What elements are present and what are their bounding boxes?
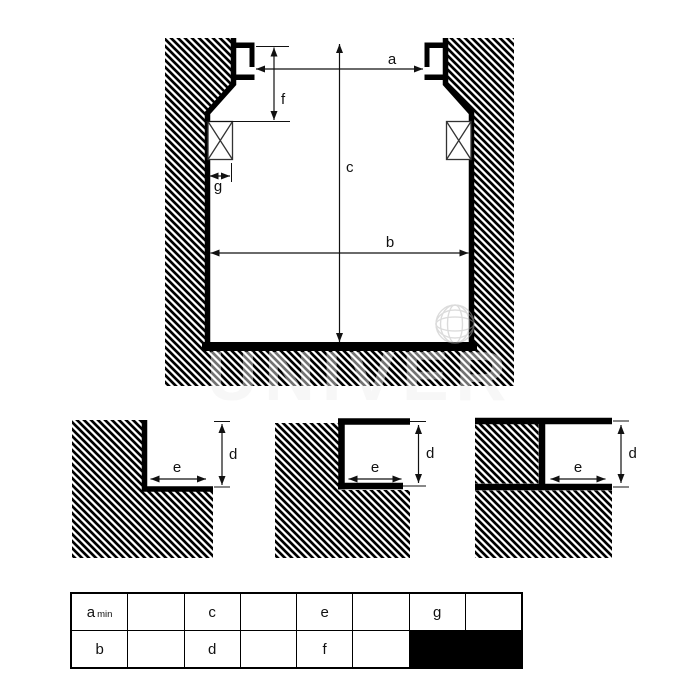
- watermark-text-overlay: UNIVER: [207, 337, 513, 415]
- table-cell-filled-black: [409, 631, 522, 669]
- detail-flanged-rebate-figure: e d: [275, 419, 434, 559]
- detail2-dim-d-label: d: [426, 445, 434, 462]
- detail3-hatch-lower: [475, 491, 612, 559]
- table-label-a-subscript: min: [97, 609, 112, 620]
- table-cell-d: d: [184, 631, 240, 669]
- table-cell-f-value: [353, 631, 409, 669]
- table-row-2: b d f: [71, 631, 522, 669]
- table-cell-d-value: [240, 631, 296, 669]
- table-cell-e: e: [297, 593, 353, 631]
- table-cell-c-value: [240, 593, 296, 631]
- detail-channel-figure: e d: [475, 418, 637, 558]
- table-cell-g-value: [465, 593, 522, 631]
- dim-g-label: g: [214, 178, 222, 195]
- detail3-dim-d-label: d: [629, 445, 637, 462]
- detail1-dim-e-label: e: [173, 459, 181, 476]
- table-cell-g: g: [409, 593, 465, 631]
- dim-b-label: b: [386, 234, 394, 251]
- dim-c-label: c: [346, 159, 354, 176]
- table-cell-e-value: [353, 593, 409, 631]
- table-cell-a-min: amin: [71, 593, 128, 631]
- table-cell-a-value: [128, 593, 184, 631]
- detail1-dim-d-label: d: [229, 446, 237, 463]
- table-cell-b: b: [71, 631, 128, 669]
- detail3-dim-e-label: e: [574, 459, 582, 476]
- table-label-a: a: [87, 604, 95, 621]
- detail2-dim-e-label: e: [371, 459, 379, 476]
- dim-f-label: f: [281, 91, 286, 108]
- main-dimensions: [206, 44, 469, 342]
- table-cell-c: c: [184, 593, 240, 631]
- table-cell-f: f: [297, 631, 353, 669]
- detail3-hatch-upper: [475, 424, 539, 484]
- watermark-over: UNIVER: [207, 305, 513, 415]
- seal-symbol-left: [208, 122, 233, 160]
- table-row-1: amin c e g: [71, 593, 522, 631]
- dimension-value-table: amin c e g b d f: [70, 592, 523, 669]
- detail-rebate-figure: e d: [72, 420, 237, 558]
- seal-symbol-right: [447, 122, 472, 160]
- technical-drawing-page: UNIVER UNIVER: [0, 0, 700, 700]
- dim-a-label: a: [388, 51, 397, 68]
- table-cell-b-value: [128, 631, 184, 669]
